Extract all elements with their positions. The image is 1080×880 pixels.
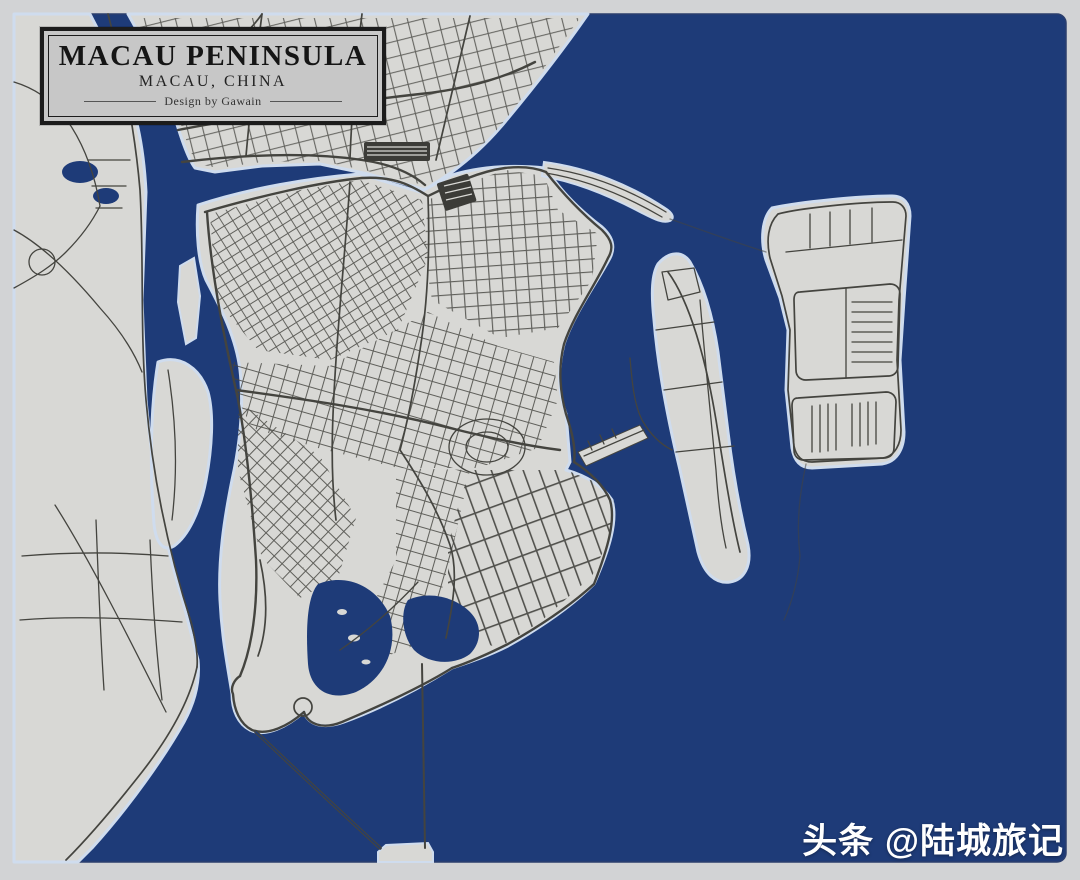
map-subtitle: MACAU, CHINA (57, 72, 369, 91)
credit-text: Design by Gawain (164, 94, 261, 109)
credit-row: Design by Gawain (57, 94, 369, 109)
credit-dash-right (270, 101, 342, 102)
title-box-inner: MACAU PENINSULA MACAU, CHINA Design by G… (48, 35, 378, 117)
title-box: MACAU PENINSULA MACAU, CHINA Design by G… (40, 27, 386, 125)
macau-map-graphic (0, 0, 1080, 880)
credit-dash-left (84, 101, 156, 102)
watermark-text: 头条 @陆城旅记 (802, 813, 1064, 864)
map-poster: MACAU PENINSULA MACAU, CHINA Design by G… (0, 0, 1080, 880)
map-title: MACAU PENINSULA (57, 41, 369, 71)
